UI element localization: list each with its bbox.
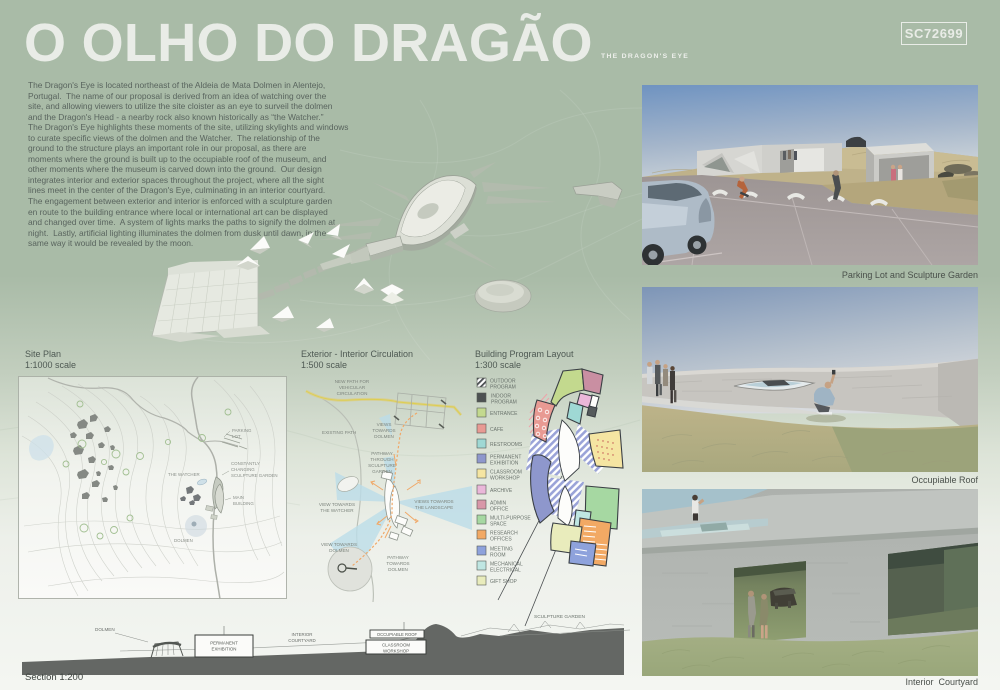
svg-text:ARCHIVE: ARCHIVE <box>490 488 513 494</box>
svg-text:DOLMEN: DOLMEN <box>95 627 115 632</box>
svg-text:CONSTANTLY: CONSTANTLY <box>231 461 260 466</box>
svg-text:OCCUPIABLE ROOF: OCCUPIABLE ROOF <box>377 632 418 637</box>
svg-text:THE WATCHER: THE WATCHER <box>320 508 354 513</box>
svg-text:DOLMEN: DOLMEN <box>388 567 408 572</box>
svg-text:OFFICES: OFFICES <box>490 537 512 543</box>
svg-text:ENTRANCE: ENTRANCE <box>490 411 518 417</box>
svg-text:VEHICULAR: VEHICULAR <box>339 385 366 390</box>
svg-text:EXHIBITION: EXHIBITION <box>212 647 237 652</box>
svg-text:TOWARDS: TOWARDS <box>386 561 409 566</box>
svg-text:WORKSHOP: WORKSHOP <box>383 649 409 654</box>
svg-text:THROUGH: THROUGH <box>370 457 393 462</box>
svg-text:PROGRAM: PROGRAM <box>490 385 516 391</box>
svg-text:PATHWAY: PATHWAY <box>387 555 409 560</box>
svg-text:VIEWS TOWARDS: VIEWS TOWARDS <box>414 499 453 504</box>
svg-text:VIEW TOWARDS: VIEW TOWARDS <box>321 542 357 547</box>
svg-text:CHANGING: CHANGING <box>231 467 255 472</box>
svg-text:ROOM: ROOM <box>490 553 506 559</box>
svg-text:VIEW TOWARDS: VIEW TOWARDS <box>319 502 355 507</box>
svg-text:PERMANENT: PERMANENT <box>210 641 238 646</box>
svg-text:OFFICE: OFFICE <box>490 507 509 513</box>
svg-text:GIFT SHOP: GIFT SHOP <box>490 579 518 585</box>
svg-text:VIEWS: VIEWS <box>377 422 392 427</box>
svg-text:COURTYARD: COURTYARD <box>288 638 315 643</box>
svg-text:ELECTRICAL: ELECTRICAL <box>490 568 521 574</box>
svg-text:EXHIBITION: EXHIBITION <box>490 461 519 467</box>
svg-text:CAFE: CAFE <box>490 427 504 433</box>
svg-text:WORKSHOP: WORKSHOP <box>490 476 520 482</box>
svg-text:SPACE: SPACE <box>490 522 507 528</box>
svg-text:PROGRAM: PROGRAM <box>491 400 517 406</box>
svg-text:PATHWAY: PATHWAY <box>371 451 393 456</box>
svg-text:RESTROOMS: RESTROOMS <box>490 442 523 448</box>
svg-text:SCULPTURE GARDEN: SCULPTURE GARDEN <box>231 473 278 478</box>
svg-text:SCULPTURE: SCULPTURE <box>368 463 396 468</box>
svg-text:DOLMEN: DOLMEN <box>329 548 349 553</box>
svg-text:GARDEN: GARDEN <box>372 469 392 474</box>
svg-text:MAIN: MAIN <box>233 495 244 500</box>
svg-text:BUILDING: BUILDING <box>233 501 254 506</box>
svg-text:NEW PATH FOR: NEW PATH FOR <box>335 379 370 384</box>
svg-text:DOLMEN: DOLMEN <box>174 538 193 543</box>
svg-text:EXISTING PATH: EXISTING PATH <box>322 430 356 435</box>
svg-text:LOT: LOT <box>232 434 241 439</box>
svg-text:PARKING: PARKING <box>232 428 252 433</box>
svg-text:DOLMEN: DOLMEN <box>374 434 394 439</box>
svg-text:CIRCULATION: CIRCULATION <box>337 391 368 396</box>
svg-text:CLASSROOM: CLASSROOM <box>382 643 410 648</box>
svg-text:TOWARDS: TOWARDS <box>372 428 395 433</box>
svg-text:INTERIOR: INTERIOR <box>292 632 313 637</box>
svg-text:THE WATCHER: THE WATCHER <box>168 472 200 477</box>
svg-text:THE LANDSCAPE: THE LANDSCAPE <box>415 505 453 510</box>
